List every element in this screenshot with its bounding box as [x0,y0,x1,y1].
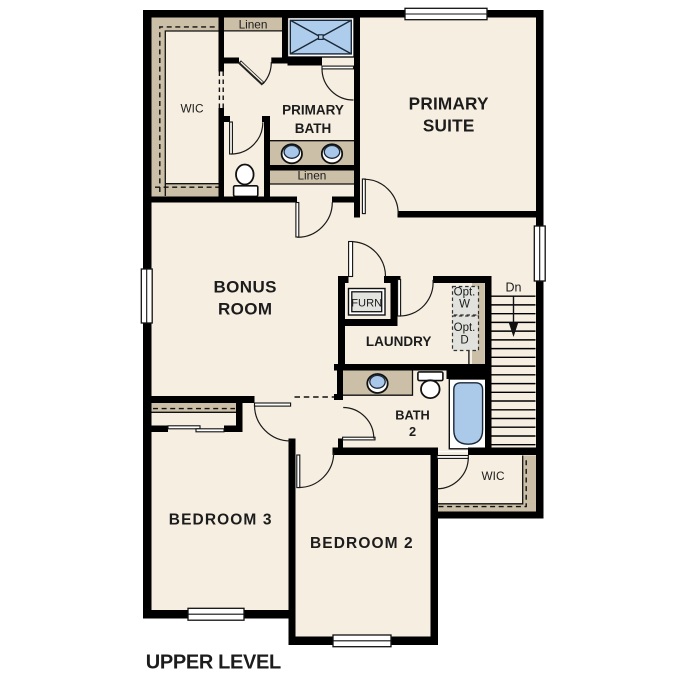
svg-text:BEDROOM 2: BEDROOM 2 [310,535,414,552]
svg-text:Linen: Linen [297,169,326,183]
svg-text:Opt.: Opt. [454,286,476,298]
svg-text:Linen: Linen [239,17,268,31]
svg-text:PRIMARY: PRIMARY [282,102,344,117]
svg-text:WIC: WIC [181,101,204,115]
svg-text:SUITE: SUITE [423,116,475,136]
svg-text:Dn: Dn [506,281,522,295]
svg-text:FURN: FURN [351,297,382,309]
svg-text:2: 2 [409,424,416,439]
svg-text:D: D [460,334,468,346]
svg-text:WIC: WIC [482,469,505,483]
svg-text:ROOM: ROOM [218,300,272,319]
svg-text:UPPER LEVEL: UPPER LEVEL [146,652,281,674]
svg-text:BATH: BATH [295,121,332,136]
svg-text:LAUNDRY: LAUNDRY [366,334,432,349]
svg-text:W: W [459,298,470,310]
svg-text:BONUS: BONUS [213,277,276,296]
svg-text:BATH: BATH [395,407,430,422]
svg-text:BEDROOM 3: BEDROOM 3 [169,512,273,529]
svg-text:Opt.: Opt. [454,322,476,334]
svg-text:PRIMARY: PRIMARY [409,93,489,113]
